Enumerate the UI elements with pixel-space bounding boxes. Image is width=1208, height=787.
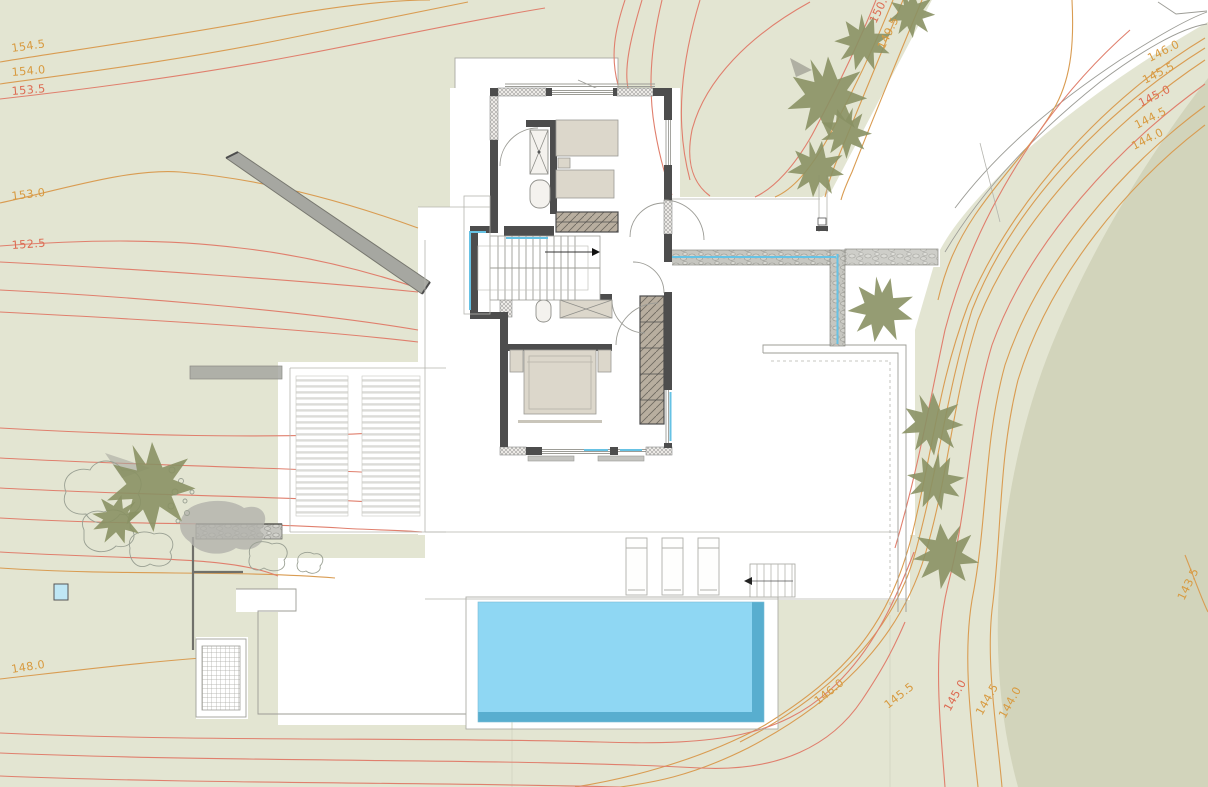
wall	[470, 233, 478, 312]
driveway-pad	[455, 58, 618, 90]
hatched-wall	[646, 447, 672, 455]
wall	[664, 234, 672, 262]
bed	[556, 170, 614, 198]
swimming-pool	[478, 602, 764, 722]
interior-wall	[504, 226, 554, 236]
door-opening	[664, 262, 672, 292]
toilet	[536, 300, 551, 322]
nightstand	[510, 350, 523, 372]
retaining-band	[190, 366, 282, 379]
sun-lounger	[662, 538, 683, 595]
hatched-wall	[617, 88, 653, 96]
lower-terrace	[278, 558, 470, 725]
exterior-stairs	[744, 564, 795, 597]
contour-label: 152.5	[11, 237, 46, 252]
sun-lounger	[626, 538, 647, 595]
lower-terrace-step	[236, 589, 296, 612]
wall	[526, 447, 542, 455]
pool-edge-shade	[752, 602, 764, 722]
b athtub	[530, 180, 550, 208]
staircase	[478, 236, 600, 300]
hatched-wall	[664, 200, 672, 234]
wall	[613, 88, 617, 96]
stone-retaining-wall	[845, 249, 938, 265]
wall	[500, 319, 508, 447]
pergola-slats	[362, 376, 420, 516]
bed	[524, 350, 596, 414]
wall	[490, 88, 498, 96]
hatched-wall	[500, 447, 526, 455]
window-sill	[598, 456, 644, 461]
wall	[546, 88, 552, 96]
bed	[556, 120, 618, 156]
nightstand	[598, 350, 611, 372]
wardrobe	[640, 296, 664, 424]
sun-loungers	[626, 538, 719, 595]
window-sill	[528, 456, 574, 461]
wall	[664, 165, 672, 200]
hatched-wall	[490, 96, 498, 140]
wall	[664, 292, 672, 390]
wall	[653, 88, 672, 96]
sun-lounger	[698, 538, 719, 595]
gate-marker	[816, 226, 828, 231]
drain-box	[54, 584, 68, 600]
gate-post	[818, 218, 826, 225]
wall	[610, 447, 618, 455]
hatched-wall	[498, 88, 546, 96]
wall	[490, 140, 498, 232]
grating	[202, 646, 240, 710]
wall	[664, 443, 672, 448]
wall	[664, 96, 672, 120]
pergola-slats	[296, 376, 348, 516]
wall	[470, 312, 508, 319]
bed-foot	[518, 420, 602, 423]
shower-drain-icon	[538, 151, 541, 154]
pool-edge-shade	[478, 712, 764, 722]
interior-wall	[526, 120, 552, 127]
site-plan-canvas: 154.5 154.0 153.5 153.0 152.5 148.0 150.…	[0, 0, 1208, 787]
nightstand	[558, 158, 570, 168]
